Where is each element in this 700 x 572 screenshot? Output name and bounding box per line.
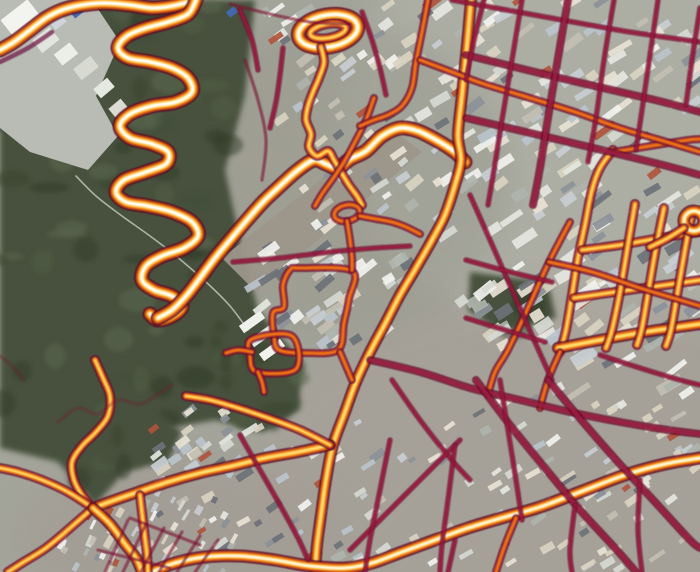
heat-trail-compound-tail-west bbox=[226, 350, 252, 353]
screenshot-root bbox=[0, 0, 700, 572]
heatmap-map-canvas[interactable] bbox=[0, 0, 700, 572]
